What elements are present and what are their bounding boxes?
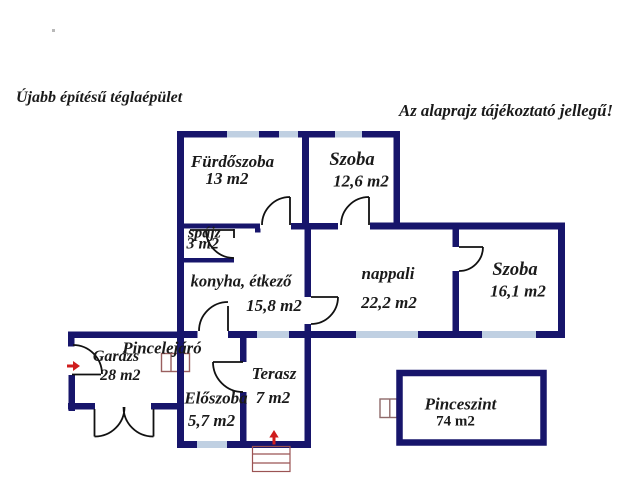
svg-text:Szoba: Szoba bbox=[492, 260, 537, 280]
svg-text:16,1 m2: 16,1 m2 bbox=[490, 282, 546, 301]
svg-text:74 m2: 74 m2 bbox=[436, 414, 475, 430]
svg-text:Újabb építésű téglaépület: Újabb építésű téglaépület bbox=[16, 87, 183, 106]
svg-text:3 m2: 3 m2 bbox=[186, 236, 219, 253]
svg-text:Pinceszint: Pinceszint bbox=[424, 395, 498, 414]
svg-text:konyha, étkező: konyha, étkező bbox=[191, 272, 294, 291]
svg-text:15,8 m2: 15,8 m2 bbox=[246, 296, 302, 315]
svg-text:Előszoba: Előszoba bbox=[183, 389, 248, 408]
svg-text:28 m2: 28 m2 bbox=[99, 367, 140, 384]
svg-text:Terasz: Terasz bbox=[252, 364, 297, 383]
svg-text:nappali: nappali bbox=[362, 264, 415, 283]
svg-text:Pincelejáró: Pincelejáró bbox=[121, 339, 201, 358]
svg-text:13 m2: 13 m2 bbox=[206, 169, 249, 188]
svg-text:5,7 m2: 5,7 m2 bbox=[188, 411, 236, 430]
svg-text:Az alaprajz tájékoztató jelleg: Az alaprajz tájékoztató jellegű! bbox=[398, 101, 613, 120]
svg-text:12,6 m2: 12,6 m2 bbox=[333, 172, 389, 191]
svg-text:7 m2: 7 m2 bbox=[256, 388, 291, 407]
svg-text:Szoba: Szoba bbox=[329, 150, 374, 170]
svg-text:22,2 m2: 22,2 m2 bbox=[360, 293, 417, 312]
